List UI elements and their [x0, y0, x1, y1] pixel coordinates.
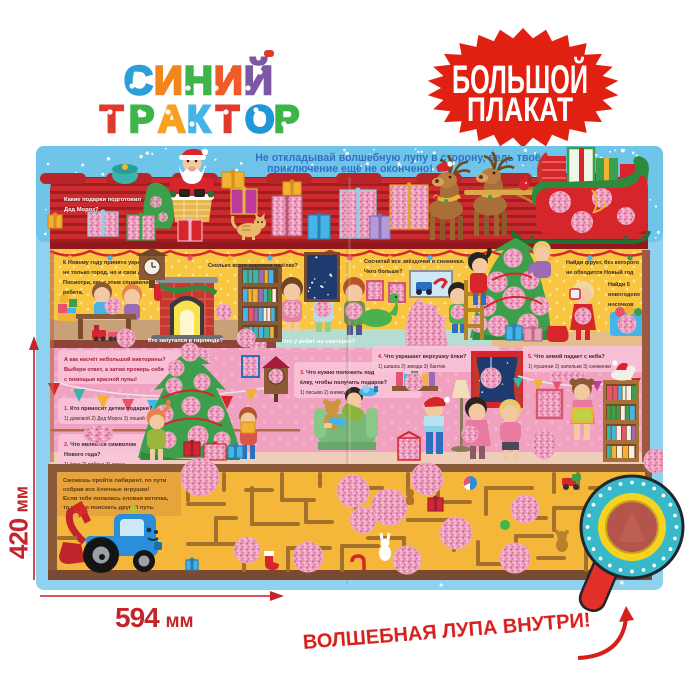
svg-text:И: И	[214, 59, 243, 103]
svg-text:Т: Т	[216, 99, 239, 141]
svg-text:5. Что зимой падает с неба?: 5. Что зимой падает с неба?	[528, 353, 605, 360]
svg-text:1) шишка 2) звезда 3) бантик: 1) шишка 2) звезда 3) бантик	[378, 364, 446, 370]
svg-text:ёлку, чтобы получить подарок?: ёлку, чтобы получить подарок?	[300, 379, 388, 386]
svg-text:3. Что нужно положить под: 3. Что нужно положить под	[300, 370, 375, 376]
svg-text:ПЛАКАТ: ПЛАКАТ	[467, 91, 573, 129]
svg-text:новогодних: новогодних	[608, 292, 641, 298]
svg-text:Р: Р	[274, 99, 299, 141]
svg-text:Нового года?: Нового года?	[64, 452, 101, 458]
svg-text:Чего больше?: Чего больше?	[364, 268, 403, 275]
svg-text:Сосчитай все звёздочки и снежи: Сосчитай все звёздочки и снежинки.	[364, 258, 465, 265]
svg-text:Что у ребят на свитерах?: Что у ребят на свитерах?	[282, 338, 356, 345]
svg-text:А: А	[158, 99, 185, 141]
svg-text:4. Что украшает верхушку ёлки?: 4. Что украшает верхушку ёлки?	[378, 354, 467, 360]
svg-text:носочков: носочков	[608, 302, 634, 308]
svg-text:1. Кто приносит детям подарки?: 1. Кто приносит детям подарки?	[64, 406, 153, 412]
svg-text:Т: Т	[100, 99, 123, 141]
svg-text:Кто запутался в гирлянде?: Кто запутался в гирлянде?	[148, 338, 224, 344]
svg-text:К: К	[187, 99, 211, 141]
svg-text:не обходится Новый год: не обходится Новый год	[566, 269, 634, 276]
svg-text:1) пушинки 2) капельки 3) снеж: 1) пушинки 2) капельки 3) снежинки	[528, 364, 611, 370]
svg-text:Найди фрукт, без которого: Найди фрукт, без которого	[566, 259, 640, 266]
svg-text:Н: Н	[184, 59, 213, 103]
svg-text:С: С	[124, 59, 153, 103]
svg-text:Й: Й	[244, 57, 273, 103]
svg-text:1) домовой 2) Дед Мороз 3) леш: 1) домовой 2) Дед Мороз 3) леший	[64, 415, 145, 422]
svg-text:О: О	[245, 99, 275, 141]
svg-text:Сколько всего шариков на ёлке?: Сколько всего шариков на ёлке?	[208, 263, 298, 269]
svg-text:Какие подарки подготовил: Какие подарки подготовил	[64, 197, 141, 203]
svg-text:Р: Р	[129, 99, 154, 141]
svg-text:И: И	[154, 59, 183, 103]
svg-text:Найди 5: Найди 5	[608, 281, 630, 288]
